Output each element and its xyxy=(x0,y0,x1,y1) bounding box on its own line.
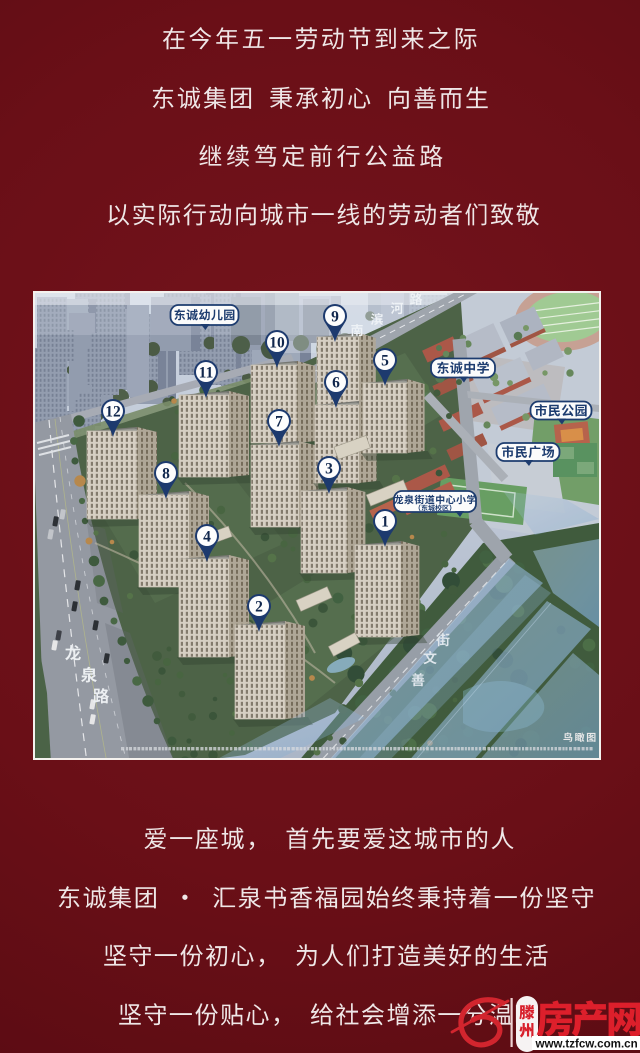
svg-text:4: 4 xyxy=(203,528,211,545)
svg-text:5: 5 xyxy=(381,352,389,369)
svg-text:9: 9 xyxy=(331,308,339,325)
svg-text:2: 2 xyxy=(255,598,263,615)
svg-text:www.tzfcw.com.cn: www.tzfcw.com.cn xyxy=(535,1038,638,1051)
svg-text:11: 11 xyxy=(199,364,214,381)
svg-text:3: 3 xyxy=(325,460,333,477)
svg-text:1: 1 xyxy=(381,513,389,530)
svg-text:6: 6 xyxy=(332,374,340,391)
svg-text:12: 12 xyxy=(105,403,121,420)
svg-text:10: 10 xyxy=(269,334,285,351)
svg-text:8: 8 xyxy=(162,465,170,482)
svg-text:7: 7 xyxy=(275,413,283,430)
